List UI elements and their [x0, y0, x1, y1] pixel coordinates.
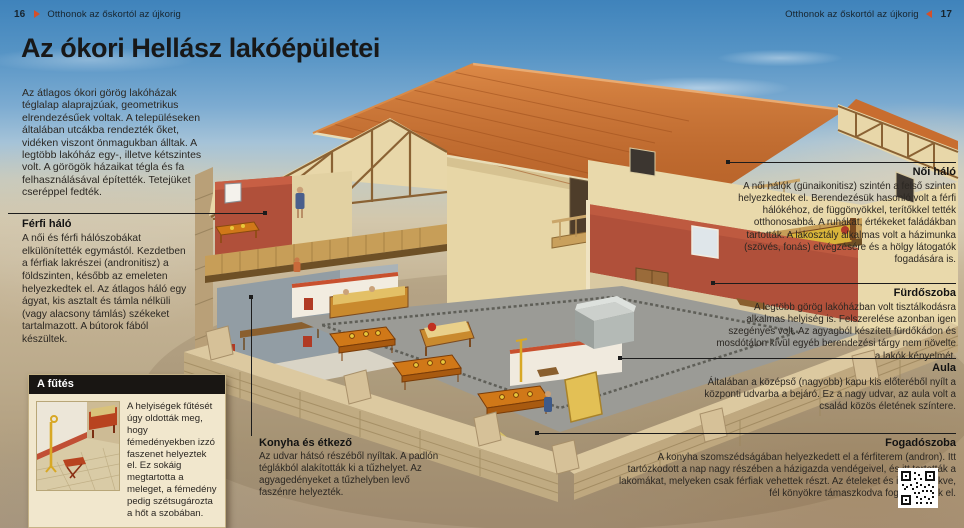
- stone-chest: [575, 296, 636, 349]
- intro-paragraph: Az átlagos ókori görög lakóházak téglala…: [22, 87, 212, 198]
- callout-body: A női hálók (günaikonitisz) szintén a fe…: [718, 181, 956, 266]
- leader-dot: [249, 295, 253, 299]
- leader-dot: [711, 281, 715, 285]
- page-title: Az ókori Hellász lakóépületei: [21, 33, 380, 64]
- callout-title: Fürdőszoba: [716, 287, 956, 299]
- window: [692, 226, 718, 258]
- callout-title: Konyha és étkező: [259, 437, 447, 449]
- infobox-body: A helyiségek fűtését úgy oldották meg, h…: [127, 401, 218, 520]
- infobox-futes: A fűtés: [28, 374, 226, 528]
- callout-aula: Aula Általában a középső (nagyobb) kapu …: [704, 362, 956, 413]
- page-number-left: 16: [14, 9, 25, 20]
- callout-title: Aula: [704, 362, 956, 374]
- leader-dot: [618, 356, 622, 360]
- callout-ferfi-halo: Férfi háló A női és férfi hálószobákat e…: [22, 218, 190, 347]
- callout-title: Férfi háló: [22, 218, 190, 230]
- leader-line-fogadoszoba: [537, 433, 956, 434]
- qr-code: [898, 468, 938, 508]
- leader-line-noi-halo: [728, 162, 956, 163]
- callout-noi-halo: Női háló A női hálók (günaikonitisz) szi…: [718, 166, 956, 266]
- callout-furdoszoba: Fürdőszoba A legtöbb görög lakóházban vo…: [716, 287, 956, 363]
- infobox-title: A fűtés: [29, 375, 225, 394]
- leader-dot: [535, 431, 539, 435]
- leader-line-ferfi-halo: [8, 213, 266, 214]
- leader-line-konyha: [251, 297, 252, 436]
- callout-body: A legtöbb görög lakóházban volt tisztálk…: [716, 302, 956, 363]
- arrow-right-icon: [34, 10, 40, 18]
- chair: [304, 298, 313, 310]
- running-head-right: Otthonok az őskortól az újkorig17: [785, 9, 952, 20]
- running-head-left-title: Otthonok az őskortól az újkorig: [47, 9, 181, 20]
- window: [225, 183, 241, 203]
- page-number-right: 17: [941, 9, 952, 20]
- arrow-left-icon: [926, 10, 932, 18]
- callout-body: A női és férfi hálószobákat elkülönített…: [22, 233, 190, 347]
- callout-body: Az udvar hátsó részéből nyíltak. A padló…: [259, 451, 447, 500]
- leader-line-furdoszoba: [713, 283, 956, 284]
- window: [630, 148, 655, 176]
- screen: [565, 372, 602, 422]
- leader-dot: [726, 160, 730, 164]
- infobox-heating-image: [36, 401, 120, 491]
- book-spread: 16Otthonok az őskortól az újkorig Otthon…: [0, 0, 964, 528]
- running-head-right-title: Otthonok az őskortól az újkorig: [785, 9, 919, 20]
- callout-body: Általában a középső (nagyobb) kapu kis e…: [704, 377, 956, 413]
- running-head-left: 16Otthonok az őskortól az újkorig: [14, 9, 181, 20]
- callout-title: Női háló: [718, 166, 956, 178]
- callout-konyha: Konyha és étkező Az udvar hátsó részéből…: [259, 437, 447, 500]
- leader-dot: [263, 211, 267, 215]
- callout-title: Fogadószoba: [616, 437, 956, 449]
